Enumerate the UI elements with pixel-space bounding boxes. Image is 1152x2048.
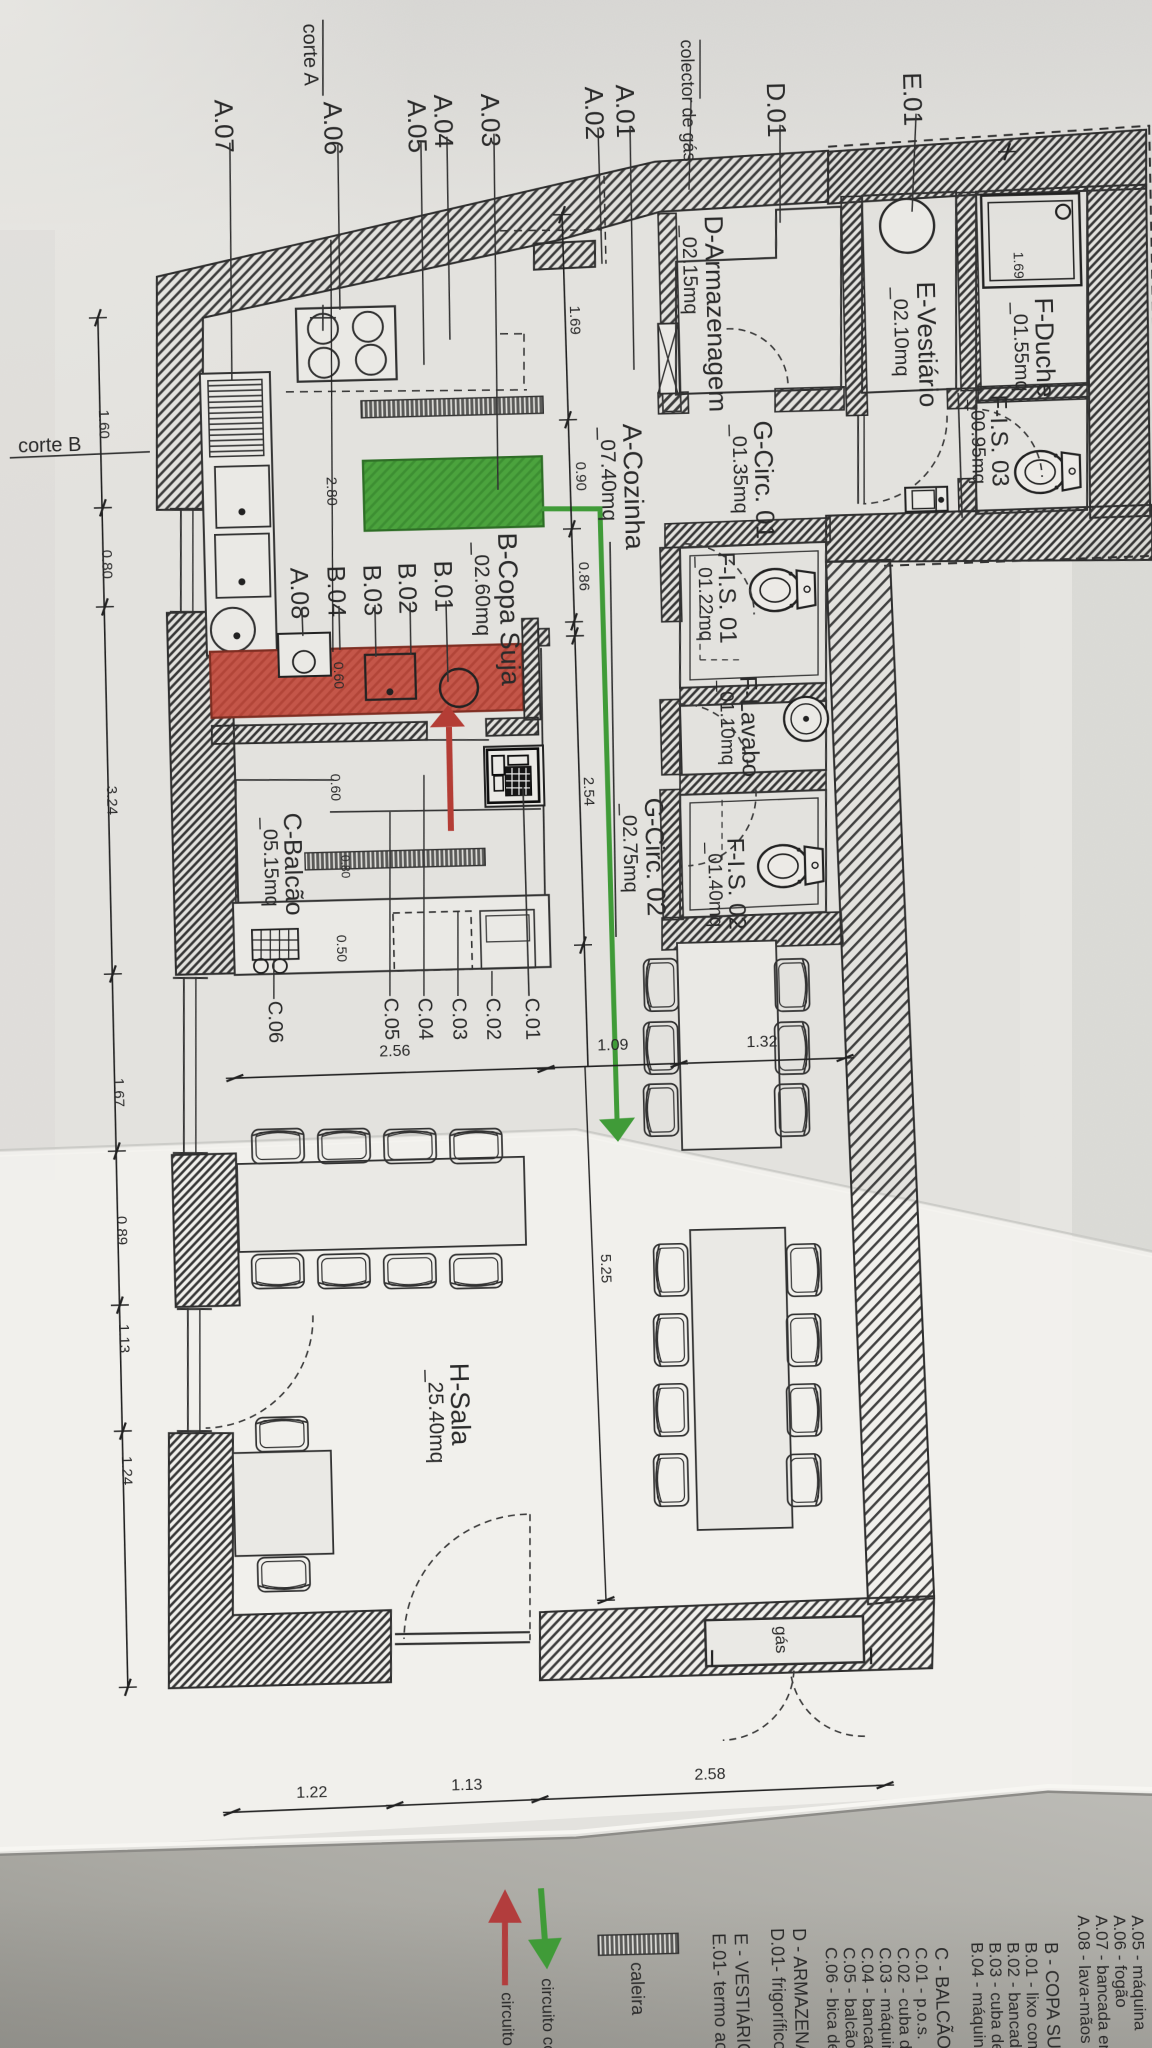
svg-text:D.01- frigorífico: D.01- frigorífico xyxy=(767,1928,790,2048)
svg-text:C - BALCÃO: C - BALCÃO xyxy=(931,1947,955,2048)
svg-text:E.01: E.01 xyxy=(897,72,928,126)
svg-text:1.69: 1.69 xyxy=(1011,251,1028,279)
svg-text:A.06: A.06 xyxy=(318,101,349,155)
svg-text:A.07: A.07 xyxy=(209,99,240,153)
svg-text:0.86: 0.86 xyxy=(575,562,593,592)
svg-text:A.01: A.01 xyxy=(610,84,641,138)
svg-text:2.58: 2.58 xyxy=(694,1766,726,1784)
svg-text:0.50: 0.50 xyxy=(334,935,351,963)
svg-text:1.22: 1.22 xyxy=(296,1784,328,1802)
svg-text:0.90: 0.90 xyxy=(572,461,590,491)
svg-text:B.04: B.04 xyxy=(321,565,350,617)
svg-text:B-Copa Suja: B-Copa Suja xyxy=(492,532,526,687)
svg-text:_02.60mq: _02.60mq xyxy=(469,541,494,636)
svg-text:C.01: C.01 xyxy=(520,998,543,1041)
svg-text:A.08: A.08 xyxy=(284,567,313,619)
svg-text:_01.10mq: _01.10mq xyxy=(715,679,738,765)
svg-text:C.05: C.05 xyxy=(379,998,402,1041)
svg-text:2.54: 2.54 xyxy=(580,777,598,807)
svg-text:E.01- termo acumulador: E.01- termo acumulador xyxy=(709,1933,734,2048)
svg-text:colector de gás: colector de gás xyxy=(677,39,700,162)
svg-text:_07.40mq: _07.40mq xyxy=(595,426,620,521)
svg-text:G-Circ. 02: G-Circ. 02 xyxy=(639,797,672,916)
svg-text:5.25: 5.25 xyxy=(597,1254,615,1284)
svg-text:_01.22mq: _01.22mq xyxy=(693,555,716,641)
svg-text:A-Cozinha: A-Cozinha xyxy=(617,423,650,551)
svg-text:1.09: 1.09 xyxy=(597,1037,629,1055)
svg-text:_05.15mq: _05.15mq xyxy=(258,817,282,907)
svg-text:circuito copa limpa: circuito copa limpa xyxy=(497,1992,520,2048)
svg-text:corte A: corte A xyxy=(298,23,322,86)
svg-text:_02.15mq: _02.15mq xyxy=(677,224,701,314)
svg-text:1.60: 1.60 xyxy=(95,409,113,439)
svg-text:C.06 - bica de cerveja: C.06 - bica de cerveja xyxy=(822,1947,845,2048)
svg-text:D.01: D.01 xyxy=(761,82,792,138)
svg-text:F-Duche: F-Duche xyxy=(1029,297,1062,397)
svg-text:0.80: 0.80 xyxy=(338,855,353,879)
svg-text:1.13: 1.13 xyxy=(451,1777,483,1795)
svg-text:1.24: 1.24 xyxy=(118,1456,136,1486)
svg-text:G-Circ. 01: G-Circ. 01 xyxy=(748,420,781,539)
svg-text:3.24: 3.24 xyxy=(103,786,121,816)
svg-text:C.06: C.06 xyxy=(263,1001,286,1044)
svg-text:_01.55mq: _01.55mq xyxy=(1008,301,1032,391)
svg-text:D - ARMAZENAGEM: D - ARMAZENAGEM xyxy=(789,1928,813,2048)
svg-text:circuito copa suja: circuito copa suja xyxy=(537,1978,559,2048)
svg-text:_02.10mq: _02.10mq xyxy=(888,286,912,376)
svg-text:A.04: A.04 xyxy=(428,94,459,148)
svg-text:gás: gás xyxy=(772,1626,792,1654)
svg-text:B.04 - máquina de lavar: B.04 - máquina de lavar xyxy=(968,1942,992,2048)
svg-text:A.02: A.02 xyxy=(579,86,610,140)
svg-text:0.89: 0.89 xyxy=(113,1216,131,1246)
svg-text:D-Armazenagem: D-Armazenagem xyxy=(699,215,734,412)
svg-text:_01.40mq: _01.40mq xyxy=(703,841,726,927)
svg-text:C.03: C.03 xyxy=(447,998,470,1041)
svg-text:0.60: 0.60 xyxy=(328,774,345,802)
svg-text:_25.40mq: _25.40mq xyxy=(423,1369,448,1464)
svg-text:B.02: B.02 xyxy=(392,562,421,614)
svg-text:E - VESTIÁRIO: E - VESTIÁRIO xyxy=(731,1933,754,2048)
svg-text:A.08 - lava-mãos de apoio: A.08 - lava-mãos de apoio xyxy=(1074,1915,1098,2048)
svg-text:1.67: 1.67 xyxy=(110,1078,128,1108)
svg-text:E-Vestiário: E-Vestiário xyxy=(911,281,944,407)
svg-text:A.03: A.03 xyxy=(475,93,506,147)
svg-text:0.60: 0.60 xyxy=(331,662,348,690)
svg-text:0.80: 0.80 xyxy=(98,550,116,580)
svg-text:B.01: B.01 xyxy=(428,560,457,612)
svg-text:B.03: B.03 xyxy=(357,564,386,616)
svg-text:C.04: C.04 xyxy=(413,998,436,1041)
svg-text:1.13: 1.13 xyxy=(115,1324,133,1354)
svg-text:corte B: corte B xyxy=(18,434,82,458)
svg-text:2.80: 2.80 xyxy=(323,477,341,507)
svg-text:caleira: caleira xyxy=(627,1962,648,2017)
svg-text:_01.35mq: _01.35mq xyxy=(727,423,751,513)
svg-text:B - COPA SUJA: B - COPA SUJA xyxy=(1041,1942,1064,2048)
svg-text:_00.95mq: _00.95mq xyxy=(966,398,989,484)
svg-text:_02.75mq: _02.75mq xyxy=(617,803,641,893)
svg-text:1.69: 1.69 xyxy=(566,305,584,335)
svg-text:1.32: 1.32 xyxy=(746,1034,778,1052)
svg-text:2.56: 2.56 xyxy=(379,1043,411,1061)
svg-text:C.02: C.02 xyxy=(481,998,504,1041)
